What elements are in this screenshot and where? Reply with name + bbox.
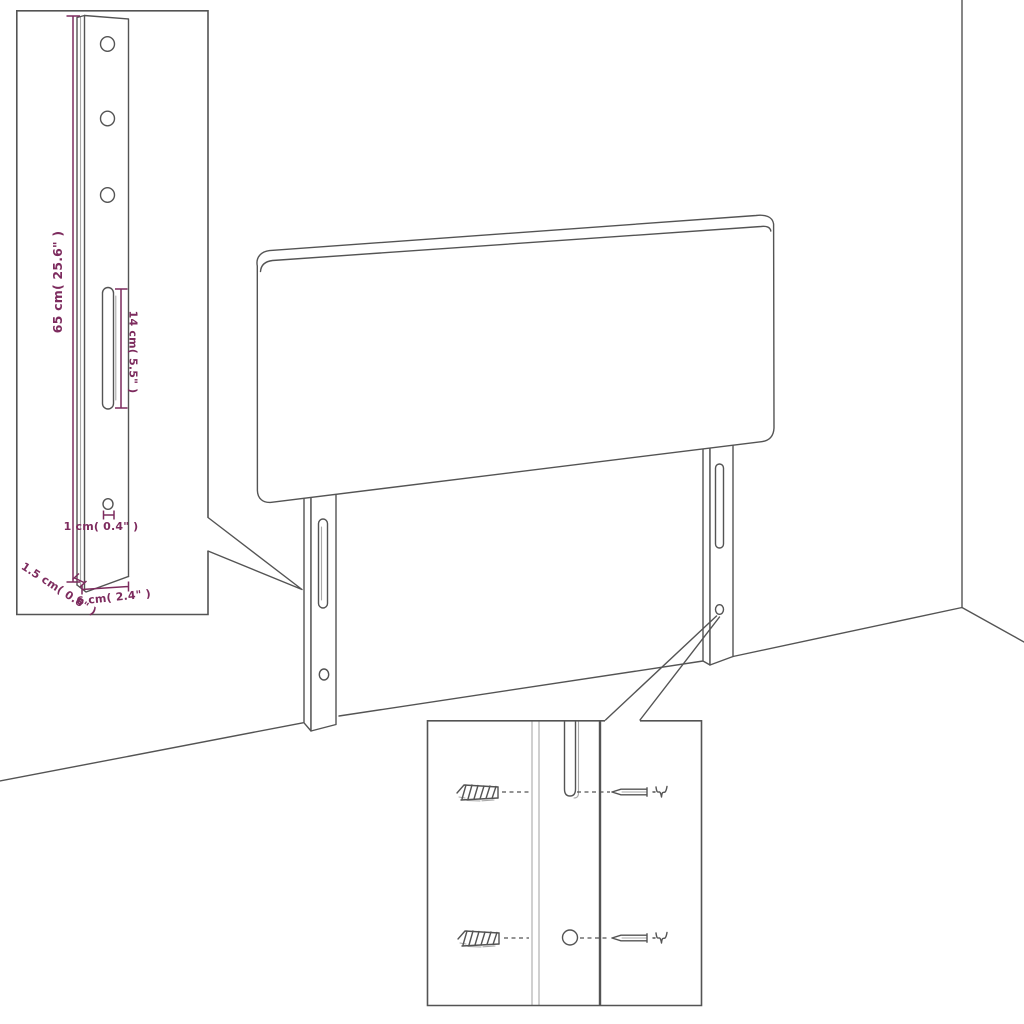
canvas-background <box>0 0 1024 1024</box>
leg-hole-3 <box>101 188 115 203</box>
dimension-hole-label: 1 cm( 0.4" ) <box>64 520 139 533</box>
leg-left-side-face <box>304 485 311 731</box>
headboard-leg-right <box>703 435 733 665</box>
leg-hole-2 <box>101 111 115 126</box>
leg-hole-1 <box>101 37 115 52</box>
mounting-hole <box>563 930 578 945</box>
dimension-slot-label: 14 cm( 5.5" ) <box>127 311 140 394</box>
headboard-leg-left <box>304 485 336 731</box>
leg-right-front-face <box>710 435 733 665</box>
leg-small-hole <box>103 499 113 510</box>
leg-left-hole <box>319 669 328 680</box>
dimension-height-label: 65 cm( 25.6" ) <box>50 231 65 333</box>
headboard-assembly-diagram: 65 cm( 25.6" ) 14 cm( 5.5" ) 1 cm( 0.4" … <box>0 0 1024 1024</box>
leg-right-hole <box>716 605 724 615</box>
